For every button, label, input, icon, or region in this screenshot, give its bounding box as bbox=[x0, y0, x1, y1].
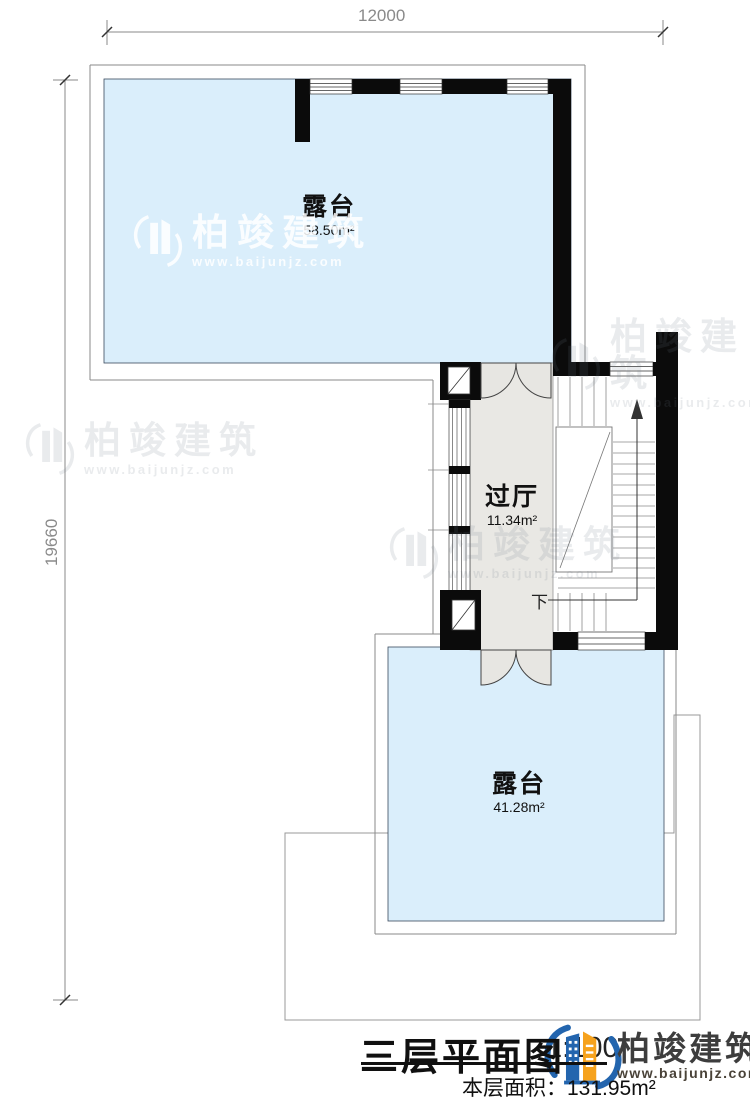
stair-treads-full bbox=[558, 578, 655, 588]
plan-title-underline bbox=[361, 1062, 607, 1065]
stair-right-wall bbox=[656, 332, 678, 650]
floorplan-page: { "colors":{ "terrace_fill":"#daeefb", "… bbox=[0, 0, 750, 1099]
room-name: 露台 bbox=[302, 194, 356, 220]
floor-area-value: 131.95m² bbox=[567, 1077, 656, 1100]
floorplan-drawing bbox=[0, 0, 750, 1099]
hall-left-window-sills bbox=[428, 404, 449, 530]
floor-area-line: 本层面积：131.95m² bbox=[462, 1072, 656, 1102]
room-hall-label: 过厅 11.34m² bbox=[485, 484, 539, 528]
dimension-left-label: 19660 bbox=[42, 519, 62, 566]
stair-flight-top bbox=[558, 377, 606, 426]
stair-hall-block bbox=[428, 332, 678, 685]
floor-area-label: 本层面积： bbox=[462, 1077, 567, 1100]
stair-treads-right bbox=[613, 442, 655, 568]
stair-bottom-wall bbox=[553, 632, 678, 650]
room-upper-terrace-label: 露台 58.50m² bbox=[302, 194, 356, 238]
room-lower-terrace-label: 露台 41.28m² bbox=[492, 771, 546, 815]
stair-flight-bottom bbox=[558, 593, 606, 631]
room-area: 11.34m² bbox=[485, 512, 539, 528]
upper-terrace-windows bbox=[310, 79, 548, 94]
stair-down-label: 下 bbox=[531, 588, 548, 613]
room-name: 露台 bbox=[492, 771, 546, 797]
stairwell bbox=[548, 377, 655, 631]
room-name: 过厅 bbox=[485, 484, 539, 510]
brand-name: 柏竣建筑 bbox=[617, 1032, 750, 1065]
room-area: 58.50m² bbox=[302, 222, 356, 238]
room-area: 41.28m² bbox=[492, 799, 546, 815]
dimension-top-label: 12000 bbox=[358, 6, 405, 26]
